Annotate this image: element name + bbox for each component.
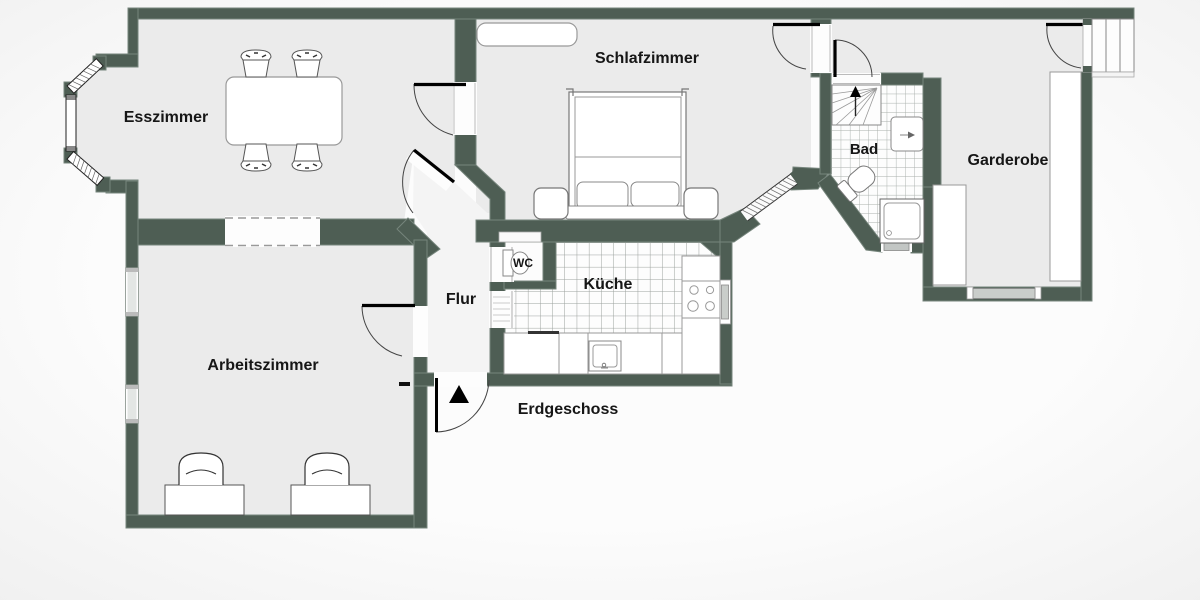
svg-text:Flur: Flur	[446, 291, 476, 308]
svg-text:Garderobe: Garderobe	[968, 152, 1049, 169]
svg-text:Arbeitszimmer: Arbeitszimmer	[207, 357, 318, 374]
svg-text:WC: WC	[513, 256, 533, 270]
svg-text:Bad: Bad	[850, 141, 878, 158]
svg-text:Esszimmer: Esszimmer	[124, 109, 209, 126]
svg-text:Küche: Küche	[584, 276, 633, 293]
svg-text:Erdgeschoss: Erdgeschoss	[518, 401, 619, 418]
svg-text:Schlafzimmer: Schlafzimmer	[595, 50, 699, 67]
